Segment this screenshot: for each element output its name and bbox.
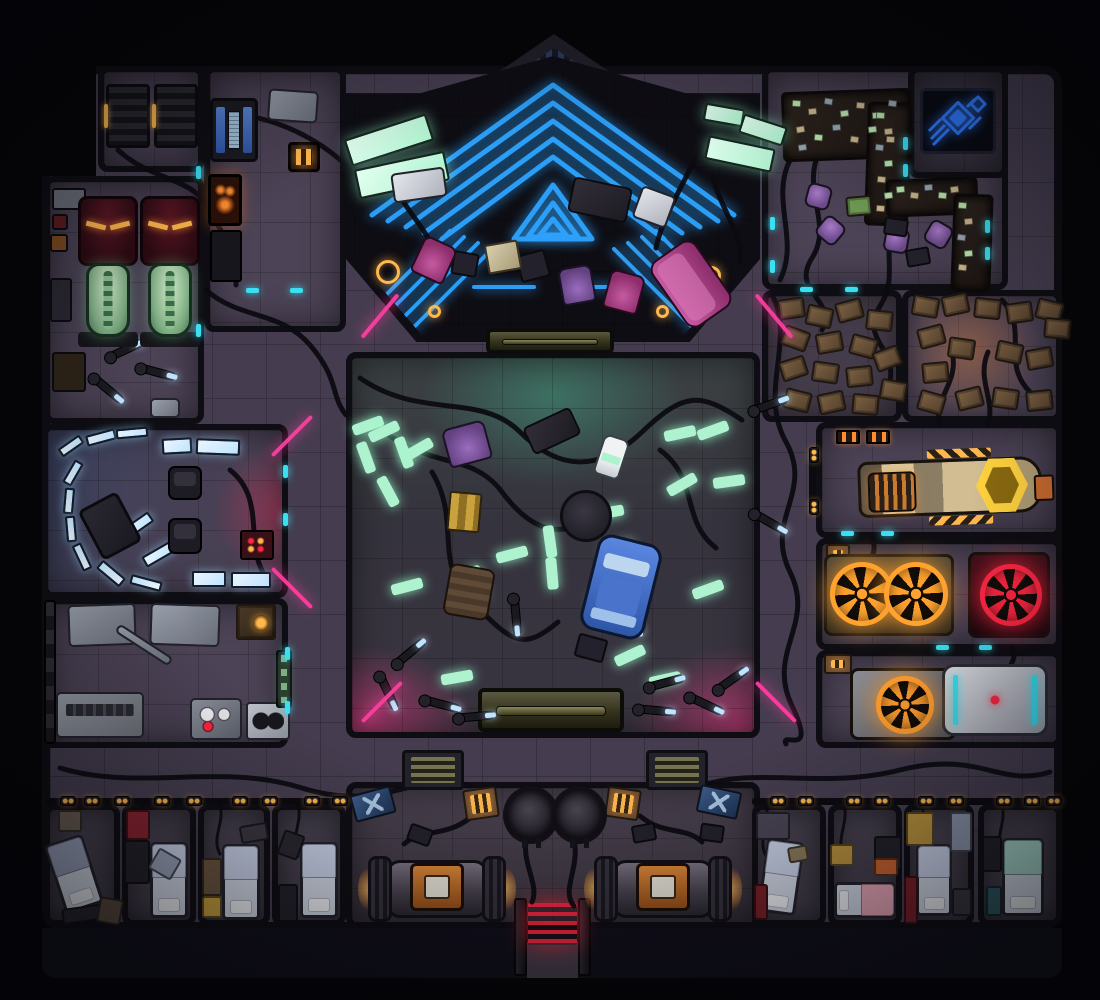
marker-v bbox=[770, 217, 775, 230]
chip bbox=[876, 205, 886, 213]
crate bbox=[865, 309, 894, 333]
chip bbox=[958, 263, 968, 271]
railgun-muzzle bbox=[1034, 474, 1055, 501]
bed bbox=[916, 844, 952, 916]
chip bbox=[877, 175, 887, 183]
crate-gold bbox=[446, 491, 482, 534]
chip bbox=[964, 218, 974, 226]
ice-screen bbox=[65, 516, 77, 543]
box-dark bbox=[699, 822, 725, 843]
pillow bbox=[766, 893, 790, 909]
crate bbox=[845, 365, 874, 389]
bunk-prop bbox=[986, 886, 1002, 916]
chip bbox=[950, 185, 960, 193]
coupler bbox=[114, 796, 130, 806]
ice-screen bbox=[231, 572, 271, 588]
orange-fan bbox=[884, 562, 948, 626]
coupler bbox=[770, 796, 786, 806]
crate bbox=[947, 336, 977, 361]
ring bbox=[656, 305, 669, 318]
blue-analyzer-machine bbox=[210, 98, 258, 162]
chip bbox=[888, 99, 898, 107]
void-notch bbox=[0, 0, 96, 176]
pillow bbox=[230, 900, 252, 913]
bunk-prop bbox=[904, 876, 918, 924]
marker-h bbox=[881, 531, 894, 536]
coupler bbox=[996, 796, 1012, 806]
coupler bbox=[84, 796, 100, 806]
vent bbox=[646, 750, 708, 790]
generator-cylinder bbox=[596, 856, 730, 922]
pod-reactor-head bbox=[78, 196, 138, 266]
bunk-prop bbox=[58, 810, 82, 832]
orange-coil-device bbox=[208, 174, 242, 226]
crate-batt bbox=[604, 786, 642, 821]
bed bbox=[1002, 838, 1044, 916]
marker-v bbox=[903, 137, 908, 150]
blue-circuit-display bbox=[920, 88, 996, 154]
coupler bbox=[874, 796, 890, 806]
pillow bbox=[839, 890, 849, 911]
red-laser-door bbox=[528, 903, 577, 945]
marker-h bbox=[845, 287, 858, 292]
pillow bbox=[68, 887, 95, 906]
box-dark bbox=[52, 352, 86, 392]
hazard-striped-terminal bbox=[210, 230, 242, 282]
laser-door-post bbox=[514, 898, 527, 976]
pillow bbox=[1010, 896, 1035, 910]
crate bbox=[1005, 300, 1035, 325]
crate bbox=[973, 297, 1002, 321]
server-rack bbox=[106, 84, 150, 148]
chip bbox=[896, 186, 906, 194]
amber-dial bbox=[253, 615, 269, 631]
chip bbox=[910, 191, 920, 199]
chip bbox=[798, 143, 808, 151]
marker-v bbox=[985, 220, 990, 233]
chip bbox=[884, 128, 894, 136]
car-windshield bbox=[602, 552, 650, 578]
bunk-prop bbox=[278, 884, 298, 922]
vent bbox=[402, 750, 464, 790]
crate bbox=[991, 386, 1021, 411]
generator-core-screen bbox=[410, 863, 464, 911]
bunk-prop bbox=[202, 896, 222, 918]
coupler bbox=[798, 796, 814, 806]
box-dark bbox=[883, 216, 909, 237]
steel-box bbox=[67, 603, 136, 647]
chip bbox=[814, 134, 824, 142]
pillow bbox=[924, 897, 945, 910]
marker-h bbox=[290, 288, 303, 293]
table-round bbox=[560, 490, 612, 542]
bunk-prop bbox=[756, 812, 790, 840]
orange-fan bbox=[876, 676, 934, 734]
crate bbox=[921, 361, 950, 384]
blanket bbox=[861, 884, 894, 916]
electronics-bench bbox=[950, 193, 993, 292]
crate bbox=[1043, 317, 1072, 340]
crate bbox=[811, 360, 841, 385]
chip bbox=[875, 143, 885, 151]
generator-cylinder bbox=[370, 856, 504, 922]
bunk-prop bbox=[982, 836, 1002, 872]
ring bbox=[428, 305, 441, 318]
box-dark bbox=[52, 214, 68, 230]
coupler bbox=[262, 796, 278, 806]
coupler bbox=[809, 447, 819, 463]
lounge-arena-door bbox=[486, 328, 614, 354]
bunk-prop bbox=[124, 840, 150, 884]
hacker-chair bbox=[168, 518, 202, 554]
red-fan bbox=[980, 564, 1042, 626]
marker-v bbox=[196, 324, 201, 337]
battlemap-scene[interactable] bbox=[0, 0, 1100, 1000]
arena-south-door bbox=[478, 688, 624, 732]
coupler bbox=[846, 796, 862, 806]
coupler bbox=[186, 796, 202, 806]
chip bbox=[876, 112, 886, 120]
ice-screen bbox=[196, 438, 241, 456]
marker-h bbox=[841, 531, 854, 536]
blanket bbox=[224, 846, 258, 880]
coupler bbox=[60, 796, 76, 806]
dial-machine bbox=[190, 698, 242, 740]
crate bbox=[851, 393, 880, 416]
cloning-pod-unit bbox=[78, 196, 138, 347]
chip bbox=[808, 108, 818, 116]
chem-vat bbox=[551, 786, 607, 844]
marker-h bbox=[979, 645, 992, 650]
bunk-prop bbox=[96, 896, 124, 926]
server-rack bbox=[154, 84, 198, 148]
railgun-machine bbox=[849, 441, 1052, 534]
green-clone-pod bbox=[86, 263, 130, 337]
chip bbox=[792, 100, 801, 108]
marker-h bbox=[246, 288, 259, 293]
coupler bbox=[232, 796, 248, 806]
chip bbox=[884, 191, 894, 199]
ring bbox=[376, 260, 400, 284]
bunk-prop bbox=[202, 858, 222, 896]
workbench-console bbox=[56, 692, 144, 738]
red-wall-panel bbox=[240, 530, 274, 560]
box-dark bbox=[50, 278, 72, 322]
blanket bbox=[1004, 840, 1042, 875]
coupler bbox=[154, 796, 170, 806]
marker-h bbox=[800, 287, 813, 292]
bunk-prop bbox=[830, 844, 854, 866]
crate bbox=[878, 378, 908, 403]
chip bbox=[924, 184, 934, 192]
pillow bbox=[308, 898, 330, 911]
hazard-stripes bbox=[929, 515, 993, 526]
crate-batt bbox=[462, 786, 500, 821]
marker-v bbox=[283, 465, 288, 478]
ice-screen bbox=[162, 437, 193, 455]
coupler bbox=[304, 796, 320, 806]
blanket bbox=[918, 846, 950, 878]
marker-v bbox=[770, 260, 775, 273]
pillow bbox=[158, 898, 180, 911]
amber-heater-unit bbox=[288, 142, 320, 172]
marker-v bbox=[985, 247, 990, 260]
ind bbox=[836, 430, 860, 444]
pod-reactor-head bbox=[140, 196, 200, 266]
chair-brown bbox=[442, 562, 496, 621]
cloning-pod-unit bbox=[140, 196, 200, 347]
marker-v bbox=[285, 701, 290, 714]
bunk-prop bbox=[126, 810, 150, 840]
marker-v bbox=[196, 166, 201, 179]
chip bbox=[886, 136, 895, 144]
chip bbox=[856, 102, 866, 110]
bed bbox=[300, 842, 338, 918]
steel-box bbox=[267, 88, 319, 123]
crate-batt bbox=[824, 654, 852, 674]
chip bbox=[823, 97, 833, 105]
hacker-chair bbox=[168, 466, 202, 500]
laser-door-post bbox=[578, 898, 591, 976]
chip bbox=[938, 192, 948, 200]
ice-screen bbox=[192, 571, 226, 587]
bunk-prop bbox=[787, 844, 809, 863]
blanket bbox=[46, 836, 90, 878]
box-dark bbox=[50, 234, 68, 252]
coupler bbox=[1024, 796, 1040, 806]
dial-crate bbox=[236, 604, 276, 640]
bunk-prop bbox=[906, 812, 934, 846]
chip bbox=[868, 125, 878, 133]
entry-corridor bbox=[527, 942, 578, 978]
chip bbox=[832, 124, 842, 132]
blanket bbox=[302, 844, 336, 878]
coupler bbox=[948, 796, 964, 806]
white-drone-chassis bbox=[942, 664, 1048, 736]
ind bbox=[866, 430, 890, 444]
railgun-coil bbox=[867, 471, 916, 513]
crate bbox=[1025, 389, 1054, 413]
marker-v bbox=[903, 164, 908, 177]
bunk-prop bbox=[874, 858, 898, 876]
green-clone-pod bbox=[148, 263, 192, 337]
chip bbox=[957, 233, 967, 241]
marker-h bbox=[936, 645, 949, 650]
bed bbox=[834, 882, 896, 918]
chip bbox=[884, 160, 894, 168]
crate-cream bbox=[484, 239, 523, 274]
steel-box bbox=[149, 603, 220, 647]
chip bbox=[840, 109, 850, 117]
chair-p bbox=[557, 263, 597, 306]
bunk-prop bbox=[952, 888, 972, 916]
bed bbox=[222, 844, 260, 920]
chip bbox=[850, 135, 860, 143]
crate bbox=[910, 294, 940, 319]
marker-v bbox=[285, 647, 290, 660]
chip bbox=[958, 202, 968, 210]
generator-core-screen bbox=[636, 863, 690, 911]
coupler bbox=[1046, 796, 1062, 806]
marker-v bbox=[283, 513, 288, 526]
coupler bbox=[918, 796, 934, 806]
bunk-prop bbox=[754, 884, 768, 920]
wall-pipes bbox=[44, 600, 56, 744]
coupler bbox=[809, 499, 819, 515]
crate bbox=[845, 195, 873, 217]
steel-box bbox=[150, 398, 180, 418]
chip bbox=[964, 250, 974, 258]
coupler bbox=[332, 796, 348, 806]
bunk-prop bbox=[950, 812, 972, 852]
crate bbox=[777, 296, 807, 321]
